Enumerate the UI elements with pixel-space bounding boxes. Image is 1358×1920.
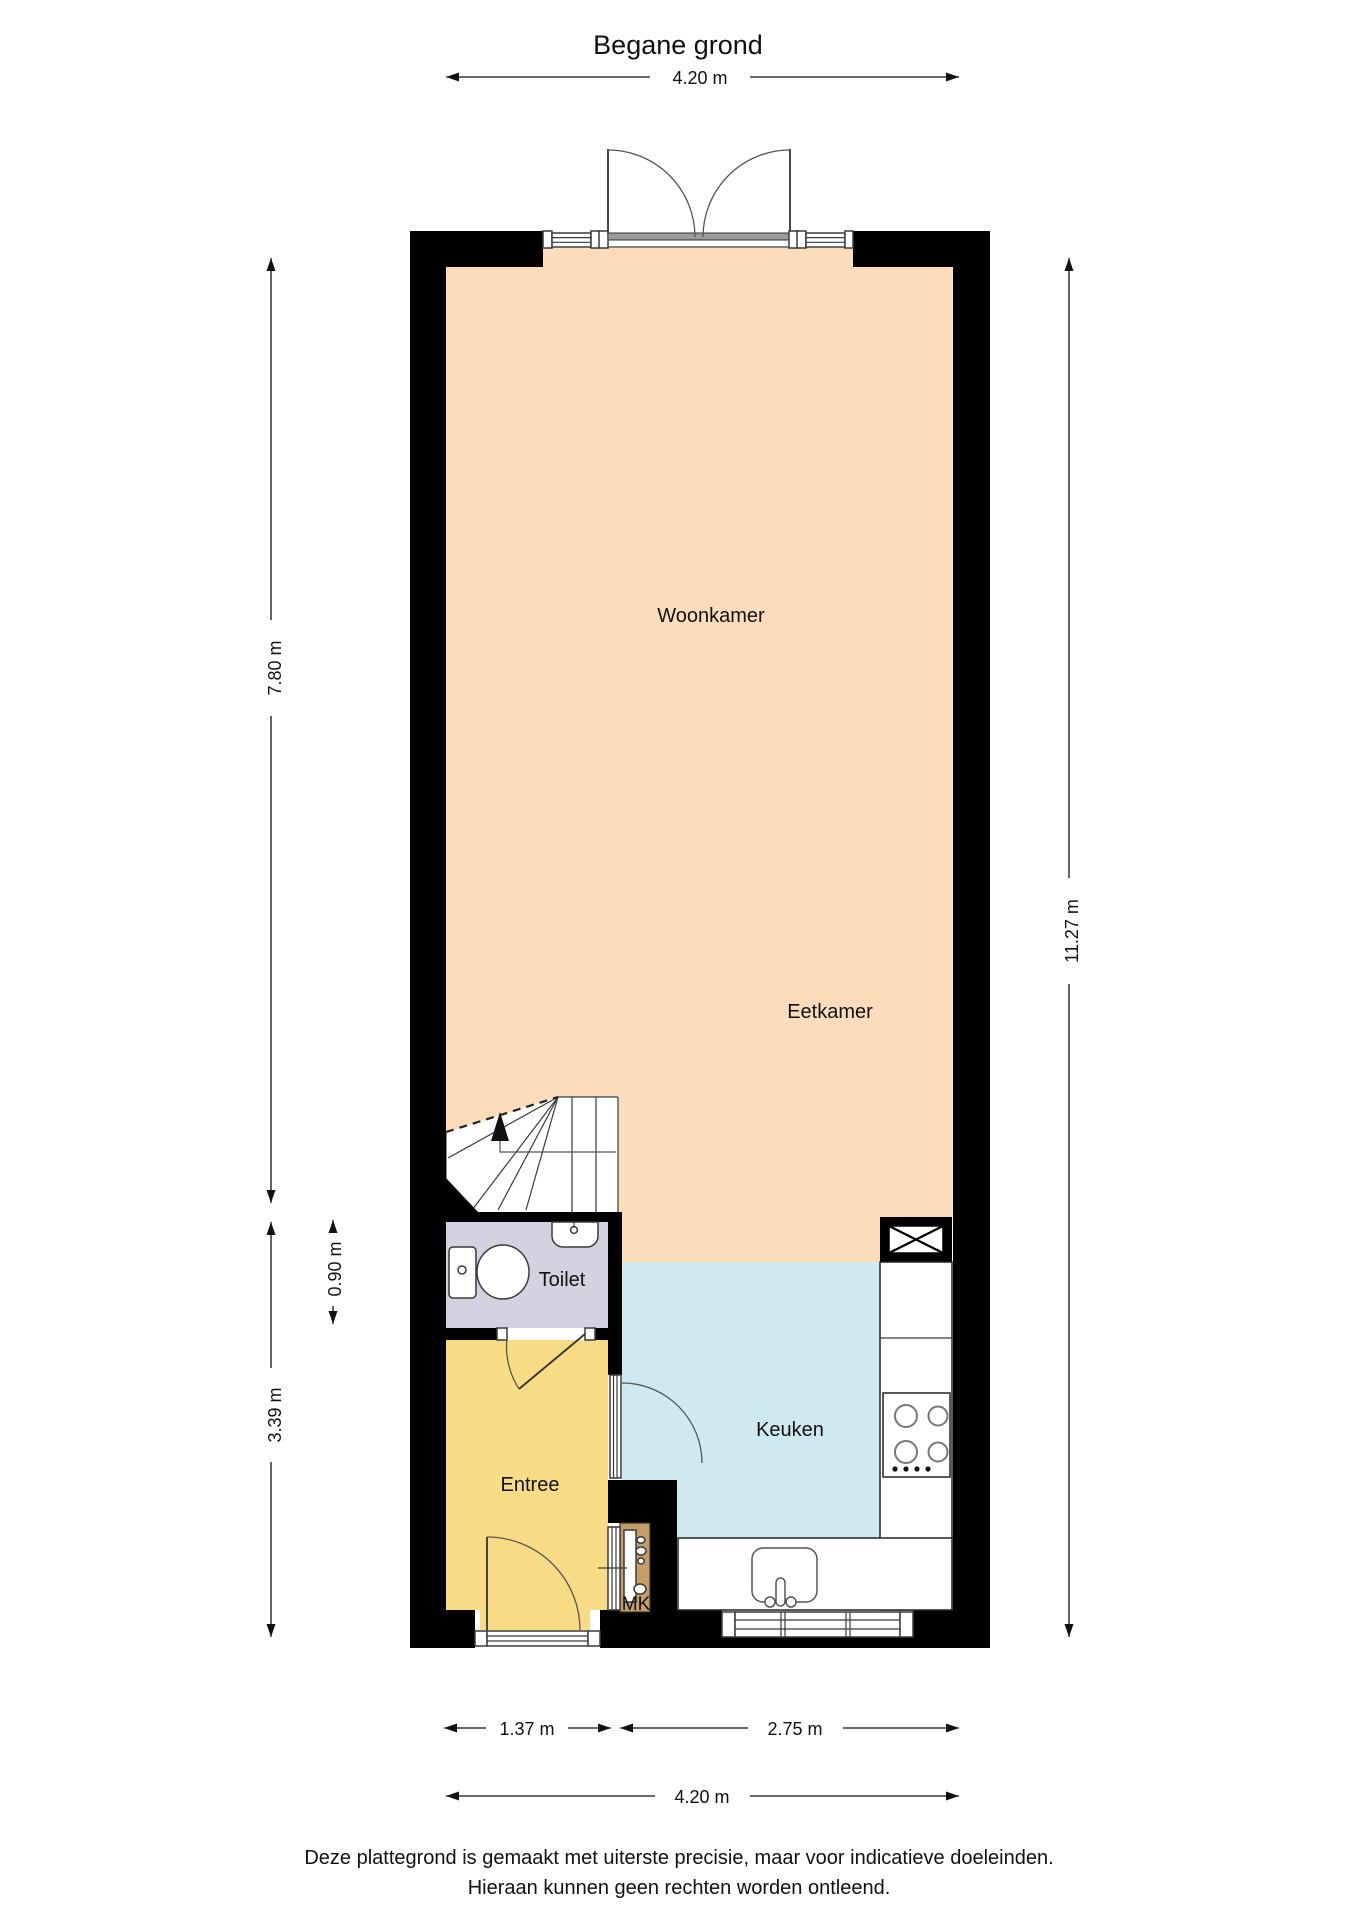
window-frame (543, 231, 552, 248)
room-label-eetkamer: Eetkamer (787, 1001, 873, 1023)
dim-top-width: 4.20 m (446, 68, 959, 88)
shaft-box (880, 1217, 952, 1262)
dim-right-total-label: 11.27 m (1062, 899, 1082, 963)
window-left (552, 233, 591, 247)
dim-left-upper: 7.80 m (265, 258, 285, 1203)
toilet-sink (552, 1222, 598, 1247)
dim-left-lower: 3.39 m (265, 1222, 285, 1637)
disclaimer-line1: Deze plattegrond is gemaakt met uiterste… (304, 1847, 1053, 1869)
dim-bottom-left: 1.37 m (444, 1719, 611, 1739)
top-facade (543, 149, 853, 248)
room-label-entree: Entree (501, 1474, 560, 1496)
window-right (806, 233, 845, 247)
room-label-toilet: Toilet (539, 1269, 586, 1291)
stove (883, 1393, 950, 1477)
stove-knob (914, 1466, 919, 1471)
toilet-bowl (477, 1245, 529, 1299)
dim-left-toilet-label: 0.90 m (325, 1241, 345, 1296)
dim-left-toilet: 0.90 m (325, 1220, 345, 1324)
window-glass (735, 1612, 900, 1637)
door-frame (599, 231, 608, 248)
stove-knob (892, 1466, 897, 1471)
french-door-threshold (608, 233, 790, 240)
kitchen-window (722, 1612, 913, 1637)
window-frame (900, 1612, 913, 1637)
door-frame (588, 1631, 600, 1646)
window-frame (797, 231, 806, 248)
stove-knob (903, 1466, 908, 1471)
page-title: Begane grond (593, 30, 763, 60)
window-frame (722, 1612, 735, 1637)
toilet-sink-tap (571, 1227, 578, 1234)
dim-bottom-total-label: 4.20 m (674, 1787, 729, 1807)
window-frame (845, 231, 853, 248)
floor-areas (446, 248, 953, 1630)
door-frame (475, 1631, 487, 1646)
dim-bottom-right: 2.75 m (620, 1719, 959, 1739)
room-label-mk: MK (622, 1594, 651, 1615)
toilet-flush-button (458, 1266, 466, 1274)
dim-top-width-label: 4.20 m (672, 68, 727, 88)
faucet-knob (765, 1597, 775, 1607)
room-label-woonkamer: Woonkamer (657, 605, 765, 627)
dim-bottom-total: 4.20 m (446, 1787, 959, 1807)
dim-bottom-left-label: 1.37 m (499, 1719, 554, 1739)
stove-knob (925, 1466, 930, 1471)
dim-left-upper-label: 7.80 m (265, 640, 285, 695)
room-label-keuken: Keuken (756, 1419, 824, 1441)
floorplan-page: 4.20 m 7.80 m 0.90 m 3.39 m (0, 0, 1358, 1920)
dim-right-total: 11.27 m (1062, 258, 1082, 1637)
dim-bottom-right-label: 2.75 m (767, 1719, 822, 1739)
disclaimer-line2: Hieraan kunnen geen rechten worden ontle… (468, 1877, 891, 1899)
door-frame (585, 1328, 595, 1340)
french-door-left-swing (608, 150, 695, 237)
dim-left-lower-label: 3.39 m (265, 1387, 285, 1442)
faucet-knob (786, 1597, 796, 1607)
kitchen-sink-faucet (776, 1578, 785, 1606)
french-door-right-swing (703, 150, 790, 237)
kitchen-door-leaf (610, 1375, 621, 1478)
door-frame (497, 1328, 507, 1340)
front-door-sill (487, 1631, 588, 1646)
